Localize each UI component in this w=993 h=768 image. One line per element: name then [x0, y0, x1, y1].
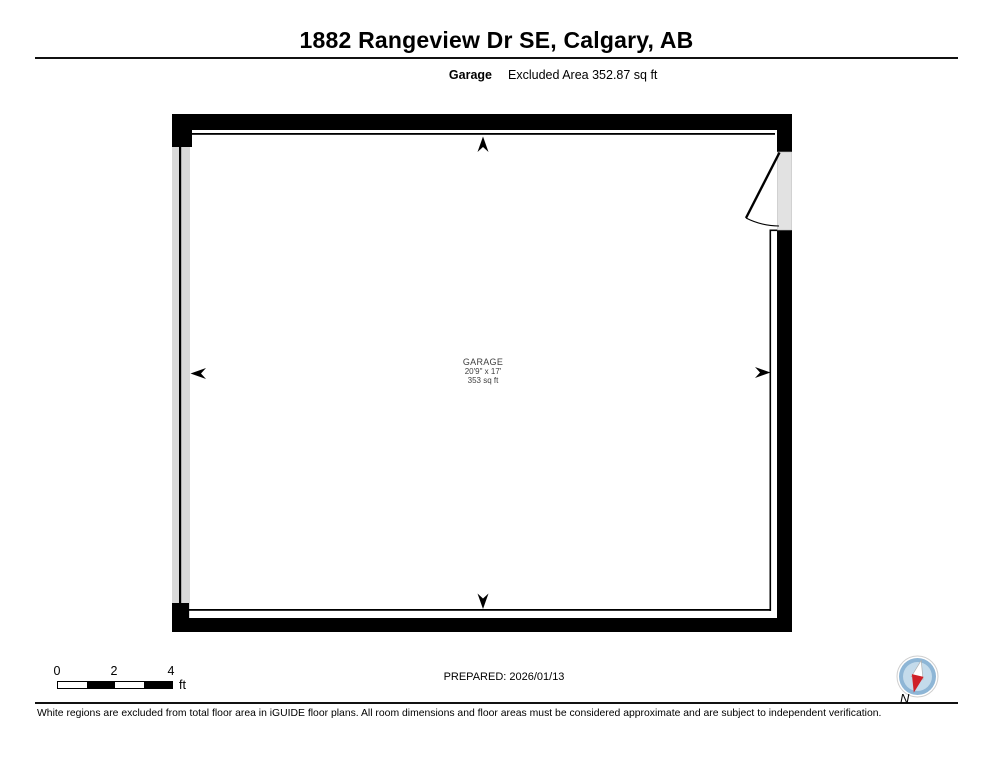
compass-north-label: N — [900, 691, 909, 706]
top-interior-line — [192, 133, 775, 135]
scale-bar: 0 2 4 ft — [57, 664, 277, 696]
floorplan-page: 1882 Rangeview Dr SE, Calgary, AB Garage… — [0, 0, 993, 768]
scale-tick-2: 2 — [111, 664, 118, 678]
door-leaf — [746, 153, 780, 219]
scale-bar-segments — [57, 681, 173, 689]
top-right-corner — [777, 114, 792, 152]
right-interior-line — [770, 230, 772, 611]
door-opening — [778, 152, 792, 230]
door-swing-arc — [746, 218, 779, 226]
left-wall-line — [179, 147, 181, 603]
bottom-left-corner — [172, 603, 189, 632]
top-left-corner — [172, 114, 192, 147]
dimension-arrow-left — [191, 368, 207, 379]
scale-tick-0: 0 — [54, 664, 61, 678]
dimension-arrow-bottom — [478, 594, 489, 610]
scale-unit: ft — [179, 678, 186, 692]
dimension-arrow-top — [478, 137, 489, 153]
scale-tick-4: 4 — [168, 664, 175, 678]
dimension-arrow-right — [755, 367, 771, 378]
bottom-wall — [172, 618, 792, 632]
prepared-date: PREPARED: 2026/01/13 — [444, 671, 565, 683]
scale-segment — [87, 682, 116, 688]
room-dimensions: 20'9" x 17' — [413, 367, 553, 376]
right-wall — [777, 230, 792, 632]
footer-divider — [35, 702, 958, 704]
disclaimer-text: White regions are excluded from total fl… — [37, 708, 881, 719]
top-wall — [172, 114, 792, 130]
room-name: GARAGE — [413, 357, 553, 367]
scale-segment — [115, 682, 144, 688]
scale-segment — [58, 682, 87, 688]
bottom-interior-line — [189, 609, 771, 611]
room-label: GARAGE 20'9" x 17' 353 sq ft — [413, 357, 553, 385]
room-area: 353 sq ft — [413, 376, 553, 385]
right-interior-cap — [770, 230, 778, 232]
scale-segment — [144, 682, 173, 688]
